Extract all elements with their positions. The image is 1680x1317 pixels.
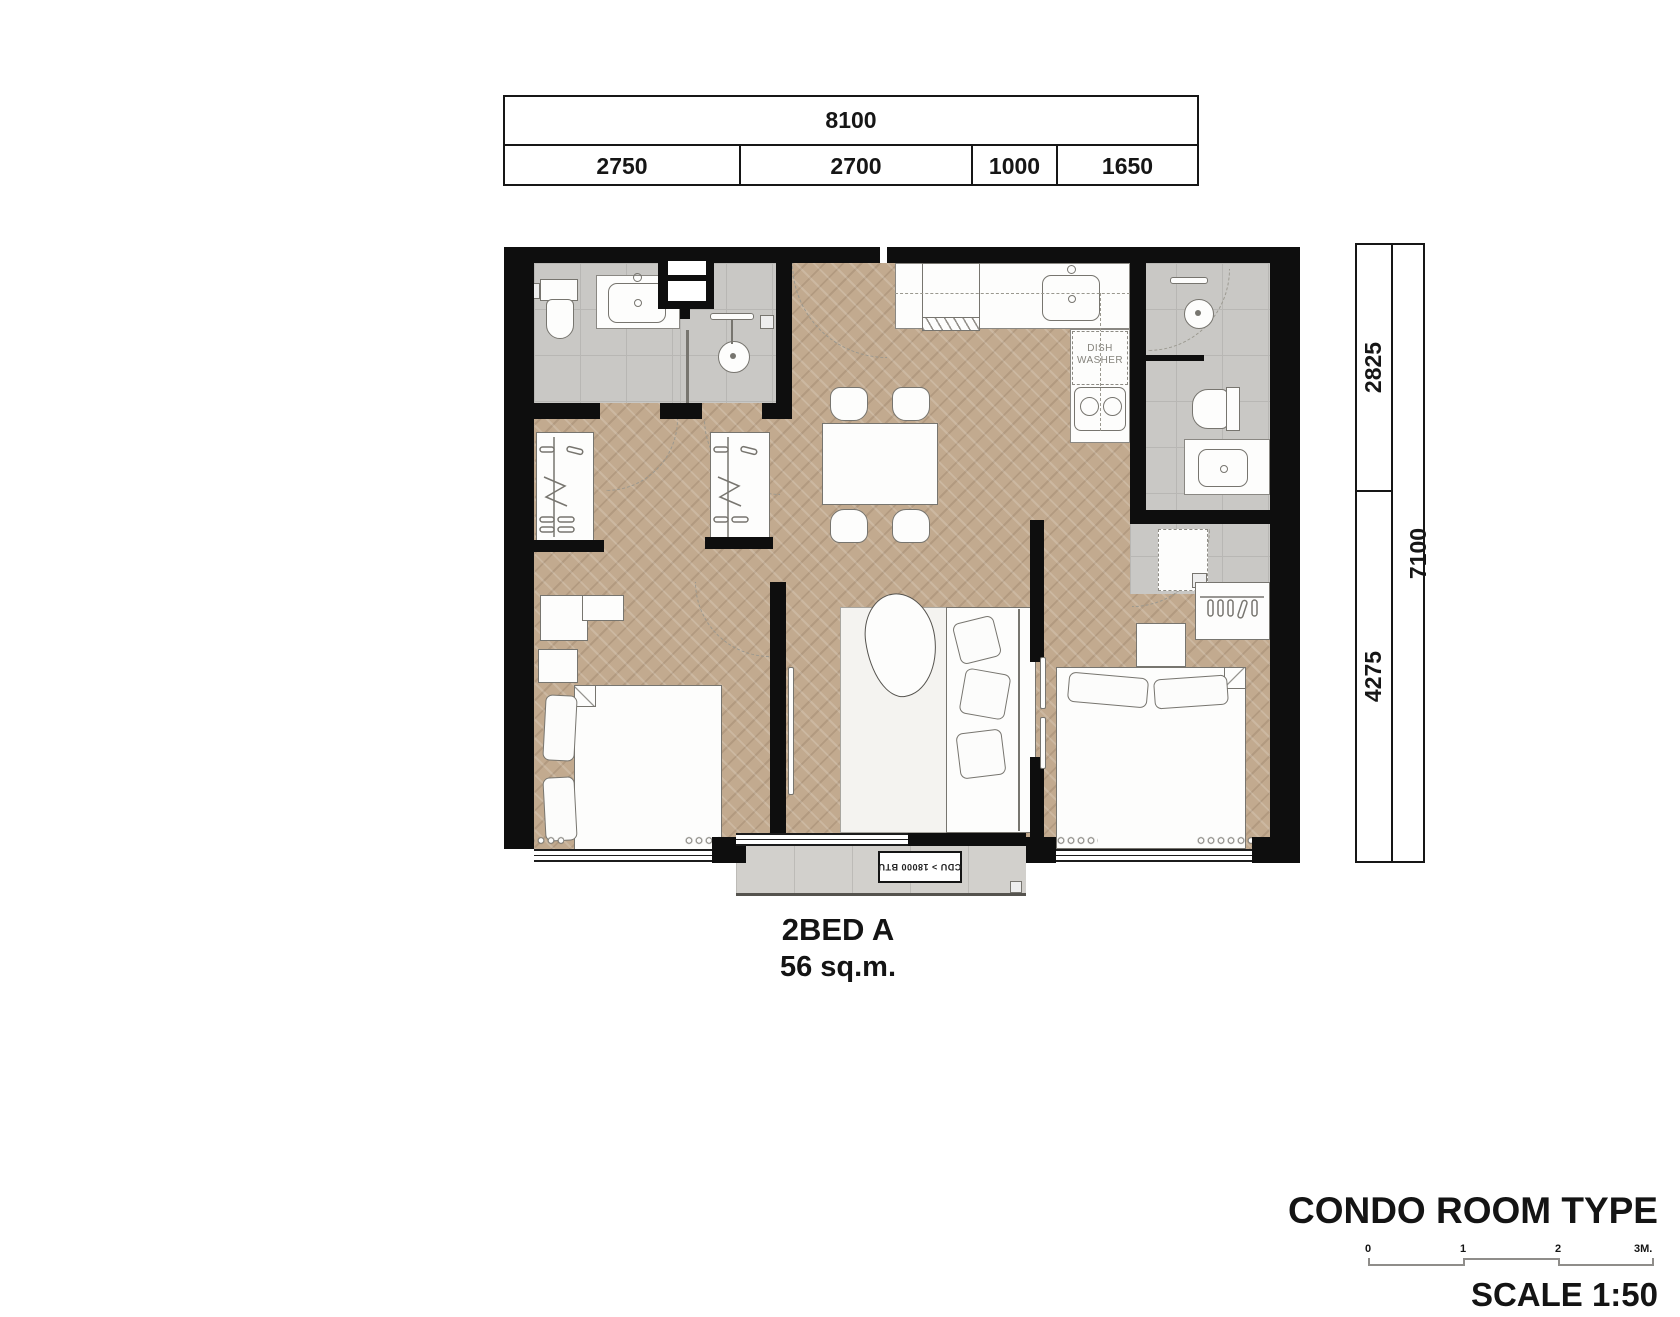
tv-panel-bedroom1 xyxy=(788,667,794,795)
vanity-1-faucet-icon xyxy=(633,273,642,282)
balcony-edge-line xyxy=(736,893,1026,896)
kitchen-dashed-line-vertical xyxy=(1100,293,1101,431)
dim-8100: 8100 xyxy=(825,107,876,134)
stove-burner-left xyxy=(1080,397,1099,416)
hanger-icons xyxy=(711,433,765,541)
bedroom1-bed xyxy=(574,685,722,857)
stove-burner-right xyxy=(1103,397,1122,416)
wall-living-bedroom2-upper xyxy=(1030,520,1044,662)
scale-tick-label: 0 xyxy=(1365,1243,1371,1255)
hanger-icons xyxy=(537,433,591,541)
sofa-pillow xyxy=(958,667,1011,720)
dimension-total-height: 7100 xyxy=(1393,245,1444,861)
wall-living-bedroom1 xyxy=(770,582,786,843)
counter-dashed-line xyxy=(895,293,1130,294)
cdu-label: CDU > 18000 BTU xyxy=(878,862,961,872)
scale-bar-segment xyxy=(1463,1258,1558,1260)
bedroom1-side-table xyxy=(582,595,624,621)
dimension-segment: 4275 xyxy=(1357,492,1391,861)
scale-bar-segment xyxy=(1558,1264,1653,1266)
bedroom2-pillow xyxy=(1153,674,1229,709)
dining-chair xyxy=(892,387,930,421)
wall-left xyxy=(504,247,534,849)
shower-glass-partition xyxy=(686,330,689,403)
sliding-door-panel xyxy=(1040,717,1046,769)
sofa-pillow xyxy=(955,728,1006,779)
scale-bar-segment xyxy=(1368,1264,1463,1266)
bedroom1-duvet-fold xyxy=(574,685,596,707)
shower-head-2-dot xyxy=(1195,310,1201,316)
shaft-niche xyxy=(668,281,706,301)
vanity-1-drain xyxy=(634,299,642,307)
shower-valve xyxy=(710,313,754,320)
balcony-sliding-door xyxy=(736,833,908,846)
scale-bar: 0 1 2 3M. xyxy=(1368,1243,1654,1273)
dimension-segment: 1650 xyxy=(1058,146,1197,186)
bedroom1-desk xyxy=(540,595,588,641)
top-dimension-table: 8100 2750 2700 1000 1650 xyxy=(503,95,1199,186)
wall-closet-bottom-right xyxy=(705,537,773,549)
toilet-2-bowl xyxy=(1192,389,1228,429)
bedroom1-pillow xyxy=(542,776,577,842)
wall-kitchen-bath2 xyxy=(1130,247,1146,523)
toilet-1-tank xyxy=(540,279,578,301)
dimension-total-width: 8100 xyxy=(505,97,1197,146)
utility-wardrobe xyxy=(1195,582,1270,640)
wall-window-pier xyxy=(1026,837,1056,863)
wall-right xyxy=(1270,247,1300,863)
sliding-door-panel xyxy=(1040,657,1046,709)
wall-balcony-segment xyxy=(908,833,1026,846)
scale-tick-label: 3M. xyxy=(1634,1243,1652,1255)
shower-stem xyxy=(731,320,733,344)
bedroom2-window xyxy=(1056,849,1252,862)
dining-chair xyxy=(892,509,930,543)
unit-area: 56 sq.m. xyxy=(638,951,1038,984)
bedroom1-nightstand xyxy=(538,649,578,683)
floor-drain-1 xyxy=(760,315,774,329)
wall-bath1-bottom xyxy=(534,403,600,419)
wardrobe-left xyxy=(536,432,594,544)
dining-chair xyxy=(830,509,868,543)
wall-bath1-bottom xyxy=(660,403,702,419)
kitchen-faucet-icon xyxy=(1067,265,1076,274)
shower-valve-2 xyxy=(1170,277,1208,284)
scale-tick-label: 2 xyxy=(1555,1243,1561,1255)
wall-closet-bottom-left xyxy=(534,540,604,552)
bedroom1-window xyxy=(534,849,712,862)
dimension-segment: 2700 xyxy=(741,146,973,186)
wall-bottom-right-corner xyxy=(1252,837,1300,863)
kitchen-cabinet-hatch xyxy=(922,317,980,331)
entrance-door-gap xyxy=(880,247,887,263)
shower-head-dot xyxy=(730,353,736,359)
bedroom1-pillow xyxy=(542,694,577,762)
wall-top xyxy=(504,247,1300,263)
hanger-icons xyxy=(1196,583,1268,637)
dimension-segment: 1000 xyxy=(973,146,1058,186)
toilet-1-bowl xyxy=(546,299,574,339)
shaft-niche xyxy=(668,261,706,275)
dimension-segment: 2750 xyxy=(505,146,741,186)
scale-label: SCALE 1:50 xyxy=(1180,1276,1658,1314)
drawing-title: CONDO ROOM TYPE xyxy=(1180,1190,1658,1232)
cdu-label-box: CDU > 18000 BTU xyxy=(878,851,962,883)
floor-plan-sheet: 8100 2750 2700 1000 1650 2825 4275 7100 xyxy=(0,0,1680,1317)
wall-utility-top xyxy=(1130,510,1300,524)
bathroom2-partition xyxy=(1146,355,1204,361)
wall-living-bedroom2-lower xyxy=(1030,757,1044,843)
floor-plan-drawing: DISH WASHER xyxy=(470,237,1300,902)
dining-chair xyxy=(830,387,868,421)
curtain-squiggle xyxy=(1196,835,1252,846)
scale-tick-label: 1 xyxy=(1460,1243,1466,1255)
dining-table xyxy=(822,423,938,505)
dimension-segment: 2825 xyxy=(1357,245,1391,492)
sofa-backrest-line xyxy=(1018,609,1020,831)
unit-name: 2BED A xyxy=(638,912,1038,948)
wall-shower-right xyxy=(776,247,792,419)
toilet-2-tank xyxy=(1226,387,1240,431)
wardrobe-right xyxy=(710,432,770,544)
right-dimension-table: 2825 4275 7100 xyxy=(1355,243,1425,863)
balcony-drain xyxy=(1010,881,1022,893)
kitchen-sink-drain xyxy=(1068,295,1076,303)
vanity-2-drain xyxy=(1220,465,1228,473)
bedroom2-nightstand xyxy=(1136,623,1186,667)
